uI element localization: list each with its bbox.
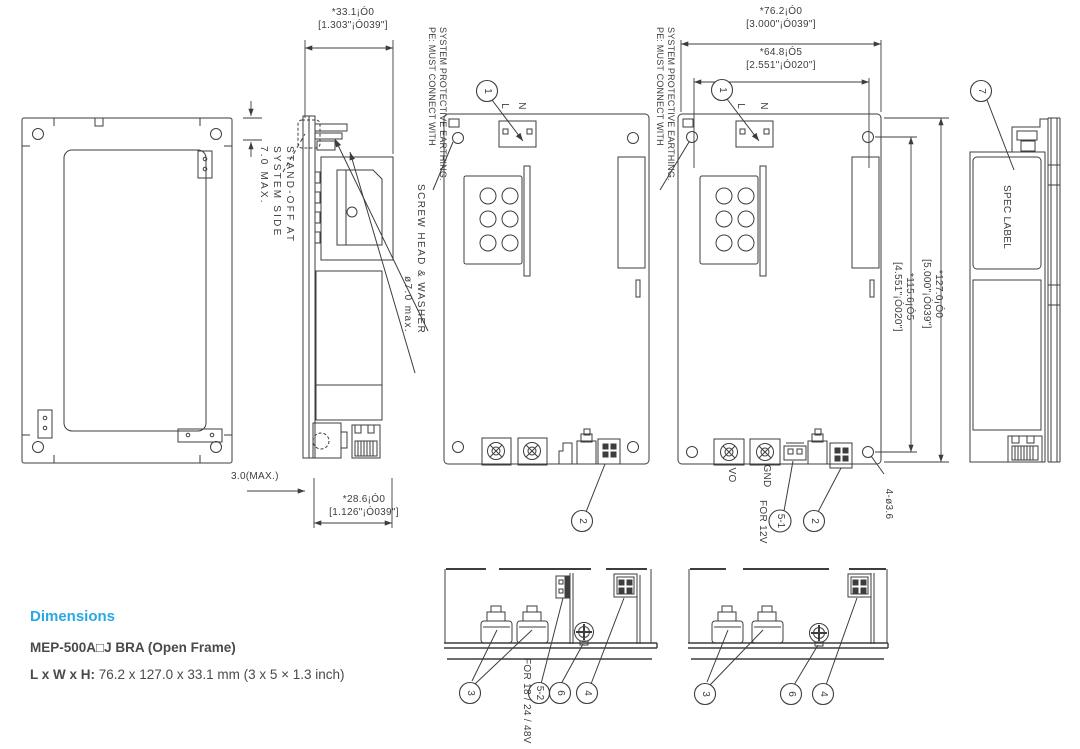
- pe-earthing-note-1: PE: MUST CONNECT WITH SYSTEM PROTECTIVE …: [426, 27, 448, 199]
- label-n-neutral-2: N: [757, 101, 769, 111]
- lwh-value: 76.2 x 127.0 x 33.1 mm (3 x 5 × 1.3 inch…: [95, 667, 345, 682]
- callout-6: 6: [782, 685, 800, 703]
- screw-head-note: SCREW HEAD & WASHER ø7.0 max.: [401, 184, 427, 392]
- callout-3: 3: [461, 684, 479, 702]
- standoff-line2: SYSTEM SIDE: [270, 146, 283, 341]
- dim-64-inch: [2.551"¡Ó020"]: [725, 60, 837, 72]
- callout-2: 2: [573, 512, 591, 530]
- pe-note-line1: PE: MUST CONNECT WITH: [426, 27, 437, 199]
- dim-3-max: 3.0(MAX.): [231, 471, 295, 483]
- label-l-line: L: [498, 101, 510, 111]
- standoff-line3: 7.0 MAX.: [257, 146, 270, 341]
- screw-note-line2: ø7.0 max.: [401, 184, 414, 392]
- screw-note-line1: SCREW HEAD & WASHER: [414, 184, 427, 392]
- label-l-line-2: L: [734, 101, 746, 111]
- callout-1: 1: [713, 81, 731, 99]
- note-for-12v: FOR 12V: [756, 500, 768, 542]
- model-name: MEP-500A□J BRA (Open Frame): [30, 640, 345, 655]
- callout-5-1: 5-1: [771, 512, 789, 530]
- label-gnd: GND: [760, 463, 772, 489]
- callout-6: 6: [551, 684, 569, 702]
- label-n-neutral: N: [515, 101, 527, 111]
- dim-115-mm: *115.6¡Ó5: [903, 235, 915, 359]
- dim-127-block: *127.0¡Ó0 [5.000"¡Ó039"]: [920, 232, 944, 356]
- standoff-note: STAND-OFF AT SYSTEM SIDE 7.0 MAX.: [257, 146, 296, 341]
- dim-28-mm: *28.6¡Ó0: [312, 494, 416, 506]
- callout-1: 1: [478, 82, 496, 100]
- lwh-label: L x W x H:: [30, 667, 95, 682]
- pe-earthing-note-2: PE: MUST CONNECT WITH SYSTEM PROTECTIVE …: [654, 27, 676, 199]
- footer-block: Dimensions MEP-500A□J BRA (Open Frame) L…: [30, 608, 345, 682]
- dim-115-block: *115.6¡Ó5 [4.551"¡Ó020"]: [891, 235, 915, 359]
- lwh-line: L x W x H: 76.2 x 127.0 x 33.1 mm (3 x 5…: [30, 667, 345, 682]
- side-view-spec-label: [970, 100, 1060, 462]
- dim-127-inch: [5.000"¡Ó039"]: [920, 232, 932, 356]
- dimension-drawing-page: *33.1¡Ó0 [1.303"¡Ó039"] *76.2¡Ó0 [3.000"…: [0, 0, 1080, 749]
- standoff-line1: STAND-OFF AT: [283, 146, 296, 341]
- pe-note-line2: SYSTEM PROTECTIVE EARTHING.: [665, 27, 676, 199]
- dim-115-inch: [4.551"¡Ó020"]: [891, 235, 903, 359]
- dim-28-inch: [1.126"¡Ó039"]: [304, 507, 424, 519]
- dim-mounting-holes: 4-ø3.6: [882, 484, 894, 524]
- dim-33-mm: *33.1¡Ó0: [298, 7, 408, 19]
- dim-33-inch: [1.303"¡Ó039"]: [292, 20, 414, 32]
- callout-5-2: 5-2: [530, 684, 548, 702]
- dim-127-mm: *127.0¡Ó0: [932, 232, 944, 356]
- dim-76-inch: [3.000"¡Ó039"]: [723, 19, 839, 31]
- dim-64-mm: *64.8¡Ó5: [731, 47, 831, 59]
- bottom-view-12v: [688, 569, 888, 685]
- callout-4: 4: [578, 684, 596, 702]
- section-title: Dimensions: [30, 608, 345, 625]
- dim-76-mm: *76.2¡Ó0: [729, 6, 833, 18]
- callout-4: 4: [814, 685, 832, 703]
- callout-balloons: [460, 80, 992, 705]
- front-view-variant-1: [433, 100, 649, 512]
- bottom-view-18-24-48v: [444, 569, 657, 684]
- pe-note-line1: PE: MUST CONNECT WITH: [654, 27, 665, 199]
- callout-3: 3: [696, 685, 714, 703]
- spec-label-text: SPEC LABEL: [1000, 185, 1012, 241]
- label-vo: VO: [725, 466, 737, 484]
- bottom-plate-view: [22, 118, 232, 463]
- callout-2: 2: [805, 512, 823, 530]
- pe-note-line2: SYSTEM PROTECTIVE EARTHING.: [437, 27, 448, 199]
- callout-7: 7: [972, 82, 990, 100]
